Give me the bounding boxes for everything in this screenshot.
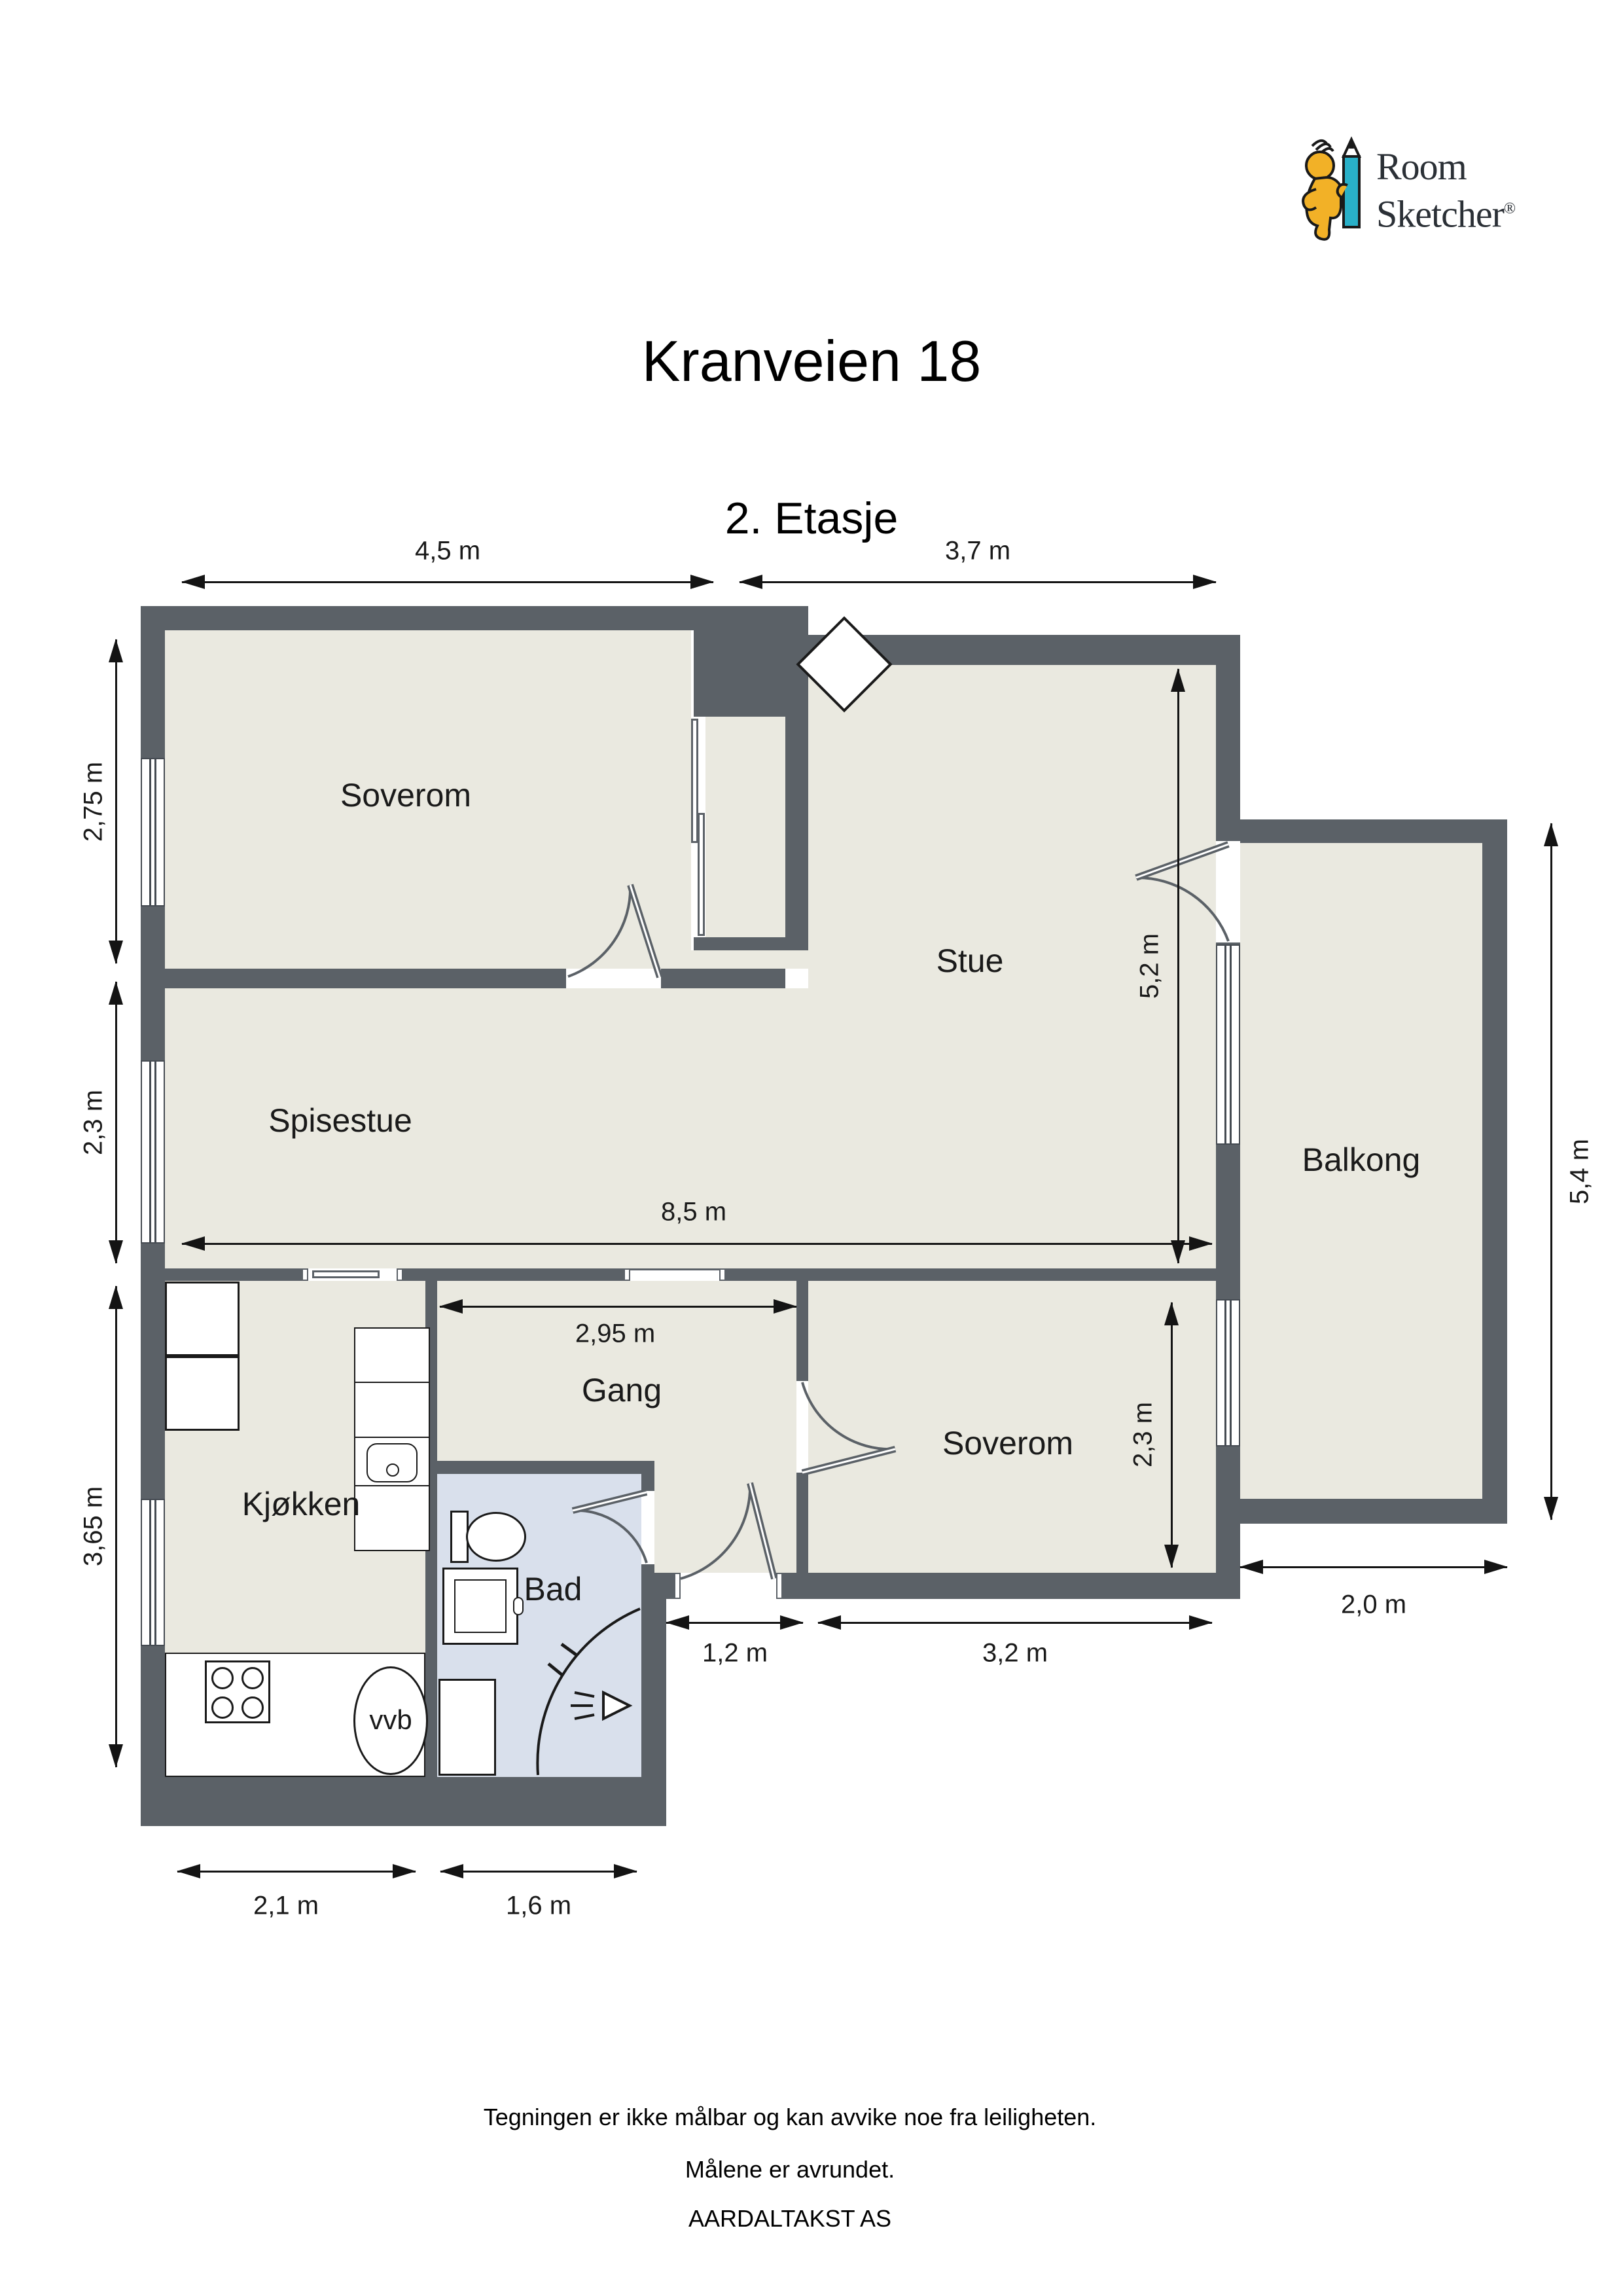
burner [241,1667,264,1689]
opening-bad-door [641,1491,654,1564]
opening-entrance-door [679,1573,777,1599]
vanity-handle [513,1597,524,1615]
room-label-soverom-top: Soverom [340,776,471,814]
opening-cap [719,1268,726,1281]
dim-arrow-stue-width [740,581,1216,583]
dim-arrow-soverom-bottom-height [1171,1302,1173,1568]
brand-wordmark: Room Sketcher® [1376,146,1515,235]
registered-mark: ® [1504,200,1515,217]
wall-bad-top [437,1461,654,1474]
wall-soverom-stue-divider [785,630,808,950]
burner [241,1696,264,1719]
dim-label-spisestue-height: 2,3 m [79,1090,109,1155]
wall-soverom-bottom-left [141,969,566,988]
dim-label-balkong-height: 5,4 m [1565,1139,1595,1204]
wall-bad-right-lower [641,1564,654,1573]
dim-arrow-soverom-bottom-width [818,1622,1212,1624]
room-label-stue: Stue [936,942,1004,980]
dim-label-kjokken-width: 2,1 m [253,1892,319,1921]
window-spisestue [141,1060,165,1244]
burner [211,1667,234,1689]
dim-label-gang-width: 2,95 m [575,1319,655,1349]
dim-label-entrance-width: 1,2 m [702,1639,768,1668]
room-label-spisestue: Spisestue [268,1102,412,1139]
dim-label-stue-width: 3,7 m [945,537,1010,566]
brand-line2: Sketcher [1376,192,1504,235]
dim-arrow-bad-width [440,1871,637,1873]
wall-balkong-right [1482,819,1507,1524]
dim-arrow-gang-width [440,1306,796,1308]
floor-gang-corridor [654,1461,796,1573]
opening-cap [624,1268,630,1281]
wall-top-soverom [141,606,694,630]
dim-arrow-kjokken-height [115,1286,117,1767]
dim-label-soverom-bottom-width: 3,2 m [982,1639,1048,1668]
floor-wardrobe-niche [705,717,785,937]
window-kjokken [141,1499,165,1646]
dim-arrow-entrance-width [666,1622,803,1624]
burner [211,1696,234,1719]
room-label-soverom-bottom: Soverom [942,1424,1073,1462]
footer-disclaimer-1: Tegningen er ikke målbar og kan avvike n… [484,2104,1097,2131]
counter-divider [355,1437,429,1438]
opening-gang [630,1268,720,1281]
wall-niche-bottom [694,937,785,950]
window-soverom-bottom [1216,1299,1240,1446]
wardrobe-sliding-door-panel [698,813,705,936]
wall-soverom-bottom-outer [808,1573,1240,1599]
dim-label-stue-height: 5,2 m [1135,933,1165,999]
kitchen-cabinet-top [165,1282,240,1356]
dim-arrow-stue-height [1177,669,1179,1263]
dim-arrow-balkong-height [1550,823,1552,1520]
wall-bottom-outer [141,1777,666,1826]
dim-label-bad-width: 1,6 m [506,1892,571,1921]
dim-arrow-soverom-top-width [182,581,713,583]
footer-disclaimer-2: Målene er avrundet. [685,2156,895,2183]
dim-label-soverom-top-width: 4,5 m [415,537,480,566]
opening-balkong-door [1216,841,1240,942]
dim-label-soverom-bottom-height: 2,3 m [1129,1402,1158,1467]
kitchen-faucet [386,1463,399,1477]
wall-soverom-bottom-right [661,969,785,988]
opening-cap [776,1573,783,1599]
kitchen-counter-right [354,1327,430,1551]
room-label-bad: Bad [524,1570,582,1608]
dim-arrow-soverom-top-height [115,639,117,963]
wall-bad-right-stub [641,1474,654,1491]
footer-attribution: AARDALTAKST AS [688,2205,891,2233]
room-label-balkong: Balkong [1302,1141,1421,1179]
dim-label-total-width: 8,5 m [661,1198,726,1227]
kitchen-cabinet-top2 [165,1356,240,1431]
washing-machine [438,1679,496,1776]
opening-soverom-bottom-door [796,1381,808,1473]
dim-arrow-balkong-width [1240,1566,1507,1568]
dim-label-balkong-width: 2,0 m [1341,1590,1406,1620]
roomsketcher-logo: Room Sketcher® [1293,134,1567,259]
window-soverom-top [141,758,165,906]
counter-divider [355,1382,429,1383]
water-heater-label: vvb [369,1704,412,1736]
room-label-kjokken: Kjøkken [242,1485,361,1523]
roomsketcher-mascot-icon [1293,134,1371,252]
wall-balkong-bottom [1240,1499,1507,1524]
opening-cap [674,1573,681,1599]
wall-top-stue [808,635,1240,665]
page-title: Kranveien 18 [642,328,982,395]
counter-divider [355,1485,429,1486]
room-label-gang: Gang [582,1371,662,1409]
dim-arrow-spisestue-height [115,982,117,1263]
brand-line1: Room [1376,145,1467,188]
bathroom-sink-inner [454,1579,507,1633]
wall-balkong-top [1240,819,1507,843]
kitchen-sink [366,1443,418,1482]
opening-soverom-top-door [566,969,661,988]
dim-arrow-kjokken-width [177,1871,416,1873]
dim-label-kjokken-height: 3,65 m [79,1486,109,1566]
toilet-bowl [466,1512,526,1562]
sliding-door-kjokken [312,1270,380,1278]
dim-arrow-total-width [182,1243,1212,1245]
window-stue [1216,944,1240,1145]
opening-cap [397,1268,403,1281]
dim-label-soverom-top-height: 2,75 m [79,762,109,842]
floor-label: 2. Etasje [725,493,899,544]
floor-gap-niche [661,950,808,969]
opening-cap [302,1268,308,1281]
